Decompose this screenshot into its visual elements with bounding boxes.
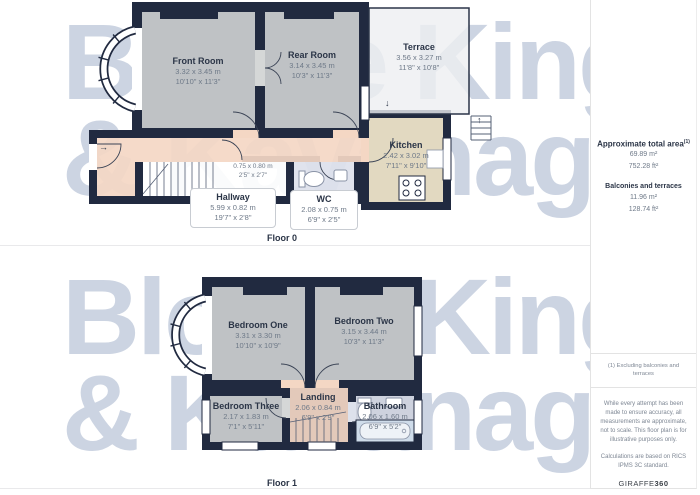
bedroom-two-label: Bedroom Two 3.15 x 3.44 m 10'3" x 11'3" (304, 316, 424, 347)
room-name: Front Room (138, 56, 258, 67)
footnote: (1) Excluding balconies and terraces (597, 362, 690, 378)
terrace-step-arrow-icon: ↓ (385, 99, 390, 108)
area-summary: Approximate total area(1) 69.89 m² 752.2… (591, 0, 696, 354)
disclaimer-standard: Calculations are based on RICS IPMS 3C s… (598, 453, 689, 471)
floor-0-panel: Bloore King& Kavanagh (0, 0, 590, 246)
floor-0-plan: Front Room 3.32 x 3.45 m 10'10" x 11'3" … (72, 0, 492, 246)
total-area-ft2: 752.28 ft² (629, 161, 659, 173)
floor-1-panel: Bloore King& Kavanagh (0, 247, 590, 489)
sink-icon (334, 170, 347, 181)
total-area-m2: 69.89 m² (630, 149, 658, 161)
sidebar: Approximate total area(1) 69.89 m² 752.2… (590, 0, 697, 489)
bay-window (99, 28, 143, 110)
room-dim-metric: 3.32 x 3.45 m (138, 67, 258, 77)
footnote-section: (1) Excluding balconies and terraces (591, 354, 696, 388)
entrance-arrow-icon: → (99, 143, 108, 152)
room-dim-imperial: 10'10" x 11'3" (138, 77, 258, 87)
bedroom-one-label: Bedroom One 3.31 x 3.30 m 10'10" x 10'9" (198, 320, 318, 351)
balconies-m2: 11.96 m² (630, 192, 657, 204)
rear-room-label: Rear Room 3.14 x 3.45 m 10'3" x 11'3" (252, 50, 372, 81)
hallway-callout: Hallway 5.99 x 0.82 m 19'7" x 2'8" (190, 188, 276, 228)
stairs-up-arrow-icon: ↑ (477, 116, 482, 125)
disclaimer-accuracy: While every attempt has been made to ens… (598, 400, 689, 445)
cupboard-label: 0.75 x 0.80 m 2'5" x 2'7" (220, 162, 286, 180)
bathroom-label: Bathroom 2.06 x 1.60 m 6'9" x 5'2" (325, 401, 445, 432)
total-area-title: Approximate total area(1) (597, 137, 690, 150)
floor-0-label: Floor 0 (72, 233, 492, 243)
balconies-title: Balconies and terraces (605, 182, 682, 192)
terrace-label: Terrace 3.56 x 3.27 m 11'8" x 10'8" (359, 42, 479, 73)
wc-callout: WC 2.08 x 0.75 m 6'9" x 2'5" (290, 190, 358, 230)
floor-1-plan: Bedroom One 3.31 x 3.30 m 10'10" x 10'9"… (72, 250, 492, 489)
front-room-label: Front Room 3.32 x 3.45 m 10'10" x 11'3" (138, 56, 258, 87)
floorplan-page: Bloore King& Kavanagh (0, 0, 700, 495)
giraffe360-logo: GIRAFFE360 (598, 479, 689, 488)
toilet-icon (299, 171, 324, 187)
footnote-marker: (1) (684, 139, 690, 145)
balconies-ft2: 128.74 ft² (629, 204, 659, 216)
disclaimer-section: While every attempt has been made to ens… (591, 388, 696, 488)
floor-1-label: Floor 1 (72, 478, 492, 488)
kitchen-label: Kitchen 2.42 x 3.02 m 7'11" x 9'10" (346, 140, 466, 171)
stove-icon (399, 176, 425, 200)
